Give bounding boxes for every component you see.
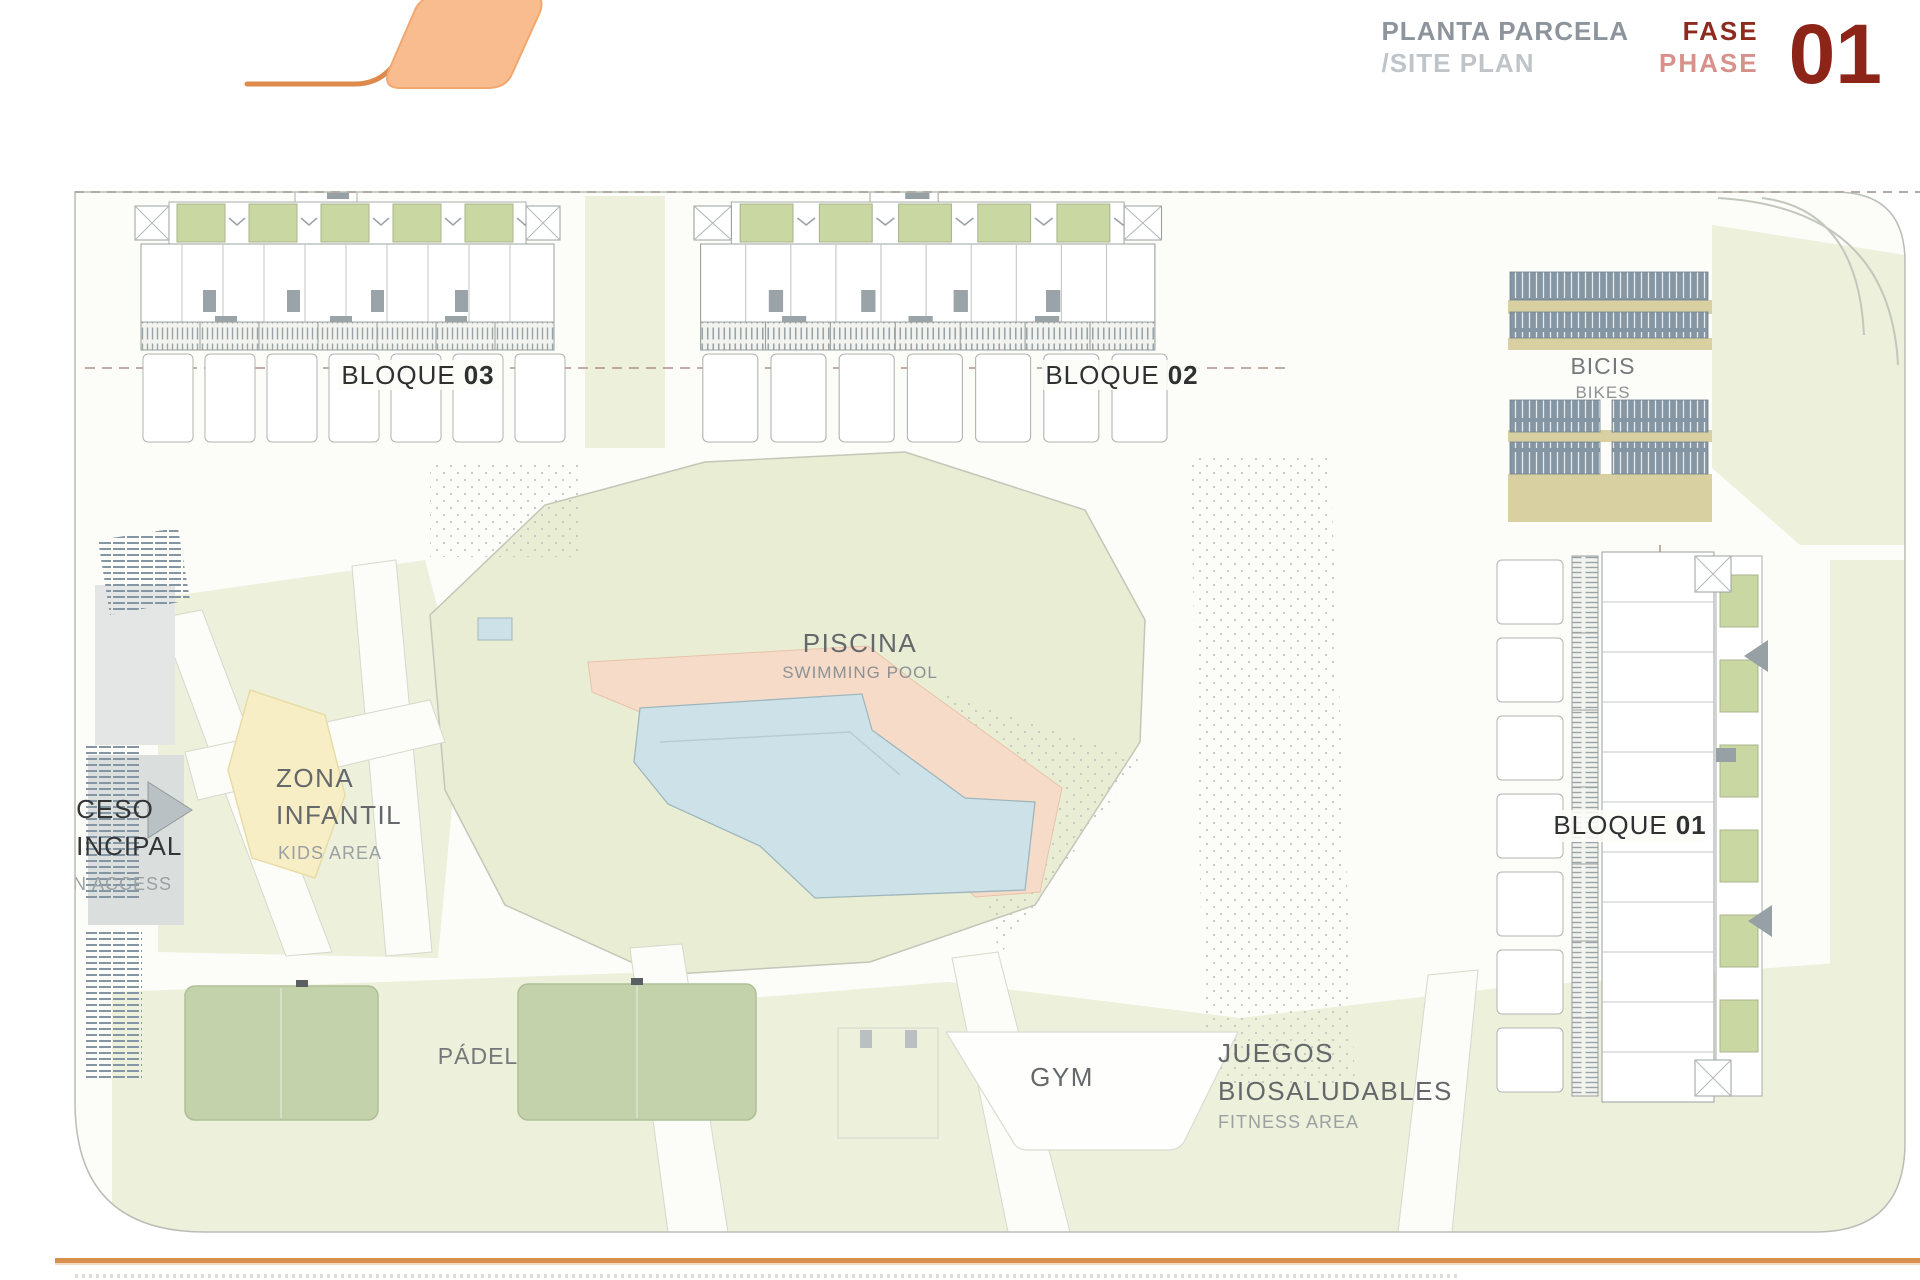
- bikes-label-es: BICIS: [1570, 353, 1635, 379]
- bloque-02-label: BLOQUE02: [1045, 360, 1198, 390]
- phase-word-es: FASE: [1659, 16, 1759, 48]
- pool-label-es: PISCINA: [803, 628, 918, 658]
- parking-strip: [98, 528, 190, 615]
- header-phase-block: FASE PHASE: [1659, 16, 1759, 79]
- header-title-secondary: /SITE PLAN: [1381, 48, 1629, 80]
- phase-word-en: PHASE: [1659, 48, 1759, 80]
- access-label-line2: PRINCIPAL: [38, 831, 182, 861]
- gym-label: GYM: [1030, 1062, 1094, 1092]
- bottom-orange-rule: [55, 1258, 1920, 1263]
- header-title-primary: PLANTA PARCELA: [1381, 16, 1629, 48]
- header-title-block: PLANTA PARCELA /SITE PLAN: [1381, 16, 1629, 79]
- kids-label-en: KIDS AREA: [278, 843, 382, 863]
- spa-pool: [478, 618, 512, 640]
- fitness-label-line1: JUEGOS: [1218, 1038, 1334, 1068]
- pool-label-en: SWIMMING POOL: [782, 663, 938, 682]
- entrance-marker-icon: [1040, 158, 1077, 182]
- kids-label-line2: INFANTIL: [276, 800, 402, 830]
- entrance-marker-icon: [455, 162, 492, 186]
- padel-label: PÁDEL: [438, 1043, 518, 1069]
- fitness-label-line2: BIOSALUDABLES: [1218, 1076, 1453, 1106]
- access-label-line1: ACCESO: [38, 794, 154, 824]
- bottom-orange-rule-shadow: [55, 1263, 1920, 1265]
- bloque-03-label: BLOQUE03: [341, 360, 494, 390]
- bikes-label-en: BIKES: [1575, 383, 1630, 402]
- fitness-label-en: FITNESS AREA: [1218, 1112, 1359, 1132]
- parking-strip: [86, 930, 142, 1080]
- access-label-en: MAIN ACCESS: [38, 874, 172, 894]
- site-plan-drawing: BLOQUE03 BLOQUE02 BLOQUE01 BICIS BIKES P…: [0, 0, 1920, 1280]
- header: PLANTA PARCELA /SITE PLAN FASE PHASE 01: [1381, 16, 1882, 90]
- brand-logo-icon: [247, 0, 542, 88]
- kids-label-line1: ZONA: [276, 763, 354, 793]
- site-plan-page: BLOQUE03 BLOQUE02 BLOQUE01 BICIS BIKES P…: [0, 0, 1920, 1280]
- phase-number: 01: [1789, 18, 1882, 90]
- bloque-01-label: BLOQUE01: [1553, 810, 1706, 840]
- building-entry-core: [1716, 748, 1736, 762]
